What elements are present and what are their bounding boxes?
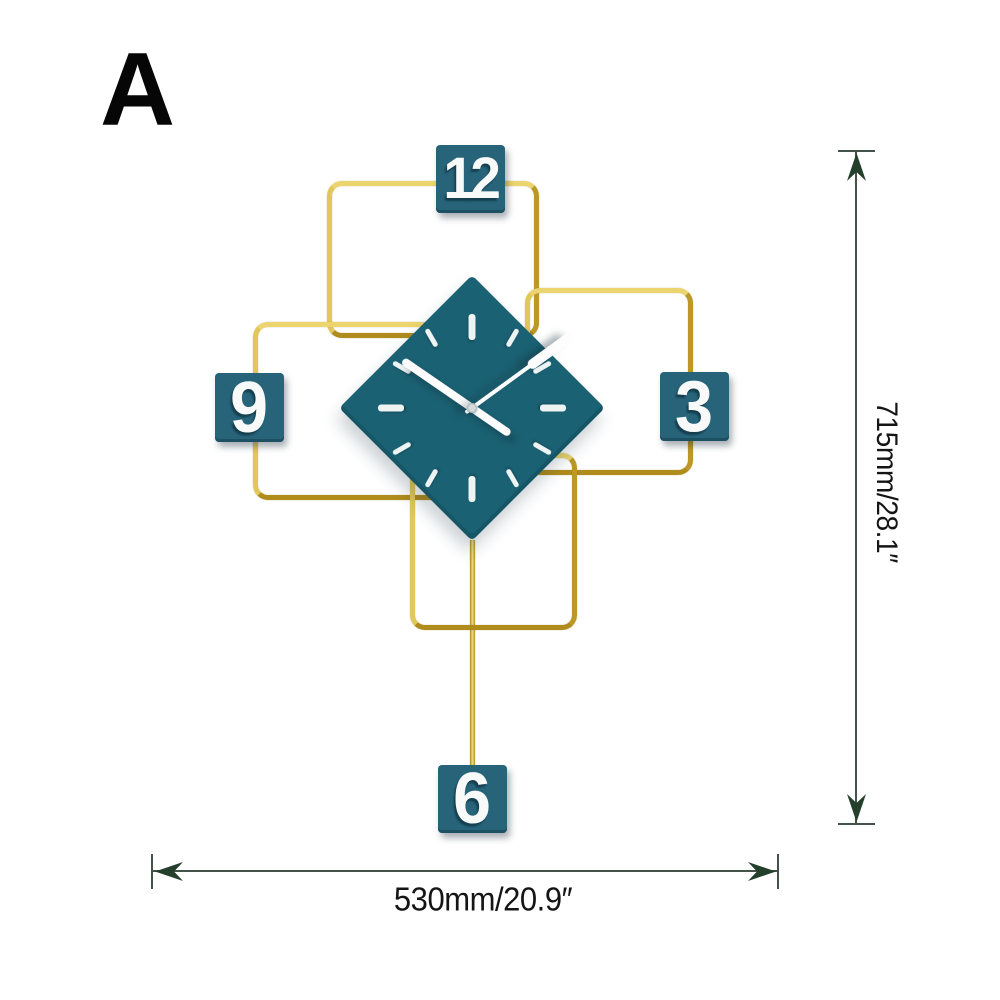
clock-tick xyxy=(424,468,438,488)
number-plate-12: 12 xyxy=(436,145,505,213)
height-dimension-bottom-cap xyxy=(838,823,875,825)
clock-tick xyxy=(505,468,519,488)
clock-tick xyxy=(378,405,404,412)
number-plate-3: 3 xyxy=(660,372,729,441)
clock-tick xyxy=(392,441,412,455)
variant-label: A xyxy=(100,38,173,142)
clock-tick xyxy=(469,476,476,502)
height-dimension-line xyxy=(855,152,857,824)
width-dimension-label: 530mm/20.9″ xyxy=(394,883,572,916)
clock-tick xyxy=(505,328,519,348)
clock-tick xyxy=(469,314,476,340)
number-plate-6: 6 xyxy=(438,765,507,833)
clock-tick xyxy=(540,405,566,412)
width-dimension-left-cap xyxy=(151,854,153,889)
number-6-label: 6 xyxy=(453,763,491,835)
width-dimension-line xyxy=(152,870,777,872)
clock-tick xyxy=(424,328,438,348)
number-plate-9: 9 xyxy=(215,373,284,442)
product-image: A 12 9 3 6 715mm/28.1″ 530mm/20.9″ xyxy=(0,0,1000,1000)
clock-center-hub xyxy=(467,403,477,413)
number-9-label: 9 xyxy=(230,372,268,444)
number-12-label: 12 xyxy=(444,150,498,208)
width-dimension-right-cap xyxy=(777,854,779,889)
height-dimension-top-cap xyxy=(838,150,875,152)
clock-tick xyxy=(532,441,552,455)
height-dimension-label: 715mm/28.1″ xyxy=(871,401,901,563)
number-3-label: 3 xyxy=(675,371,713,443)
